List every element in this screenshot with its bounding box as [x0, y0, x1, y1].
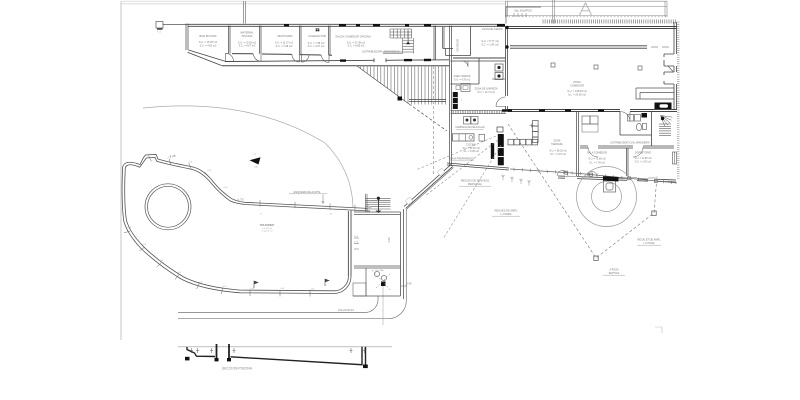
svg-text:RECIBIDOR: RECIBIDOR — [457, 38, 460, 52]
svg-text:P. 10: P. 10 — [157, 32, 161, 34]
svg-text:S.L. = 3.07 m2: S.L. = 3.07 m2 — [550, 153, 566, 156]
svg-text:S.C. = 1.93 m2: S.C. = 1.93 m2 — [481, 43, 499, 47]
svg-text:L.OTERA: L.OTERA — [500, 212, 511, 216]
svg-text:SECCION PISCINA: SECCION PISCINA — [222, 367, 253, 371]
svg-text:S.L. = 7.45 m2: S.L. = 7.45 m2 — [589, 162, 605, 165]
svg-text:S.C. = 2.07 m2: S.C. = 2.07 m2 — [308, 45, 325, 48]
svg-text:REGUES DE AMPL: REGUES DE AMPL — [495, 209, 518, 213]
svg-text:SEPTICA: SEPTICA — [609, 272, 620, 275]
svg-text:DISTRIBUIDOR CON JARDINERA: DISTRIBUIDOR CON JARDINERA — [610, 142, 649, 145]
svg-text:S.U. = 13.74 m2: S.U. = 13.74 m2 — [477, 91, 495, 94]
svg-text:VESTUARIO: VESTUARIO — [277, 34, 293, 38]
svg-text:2.90: 2.90 — [406, 282, 412, 286]
svg-text:S.C. = 4.07 m2: S.C. = 4.07 m2 — [239, 45, 256, 48]
svg-text:ZONA PREPARADOS: ZONA PREPARADOS — [449, 158, 474, 161]
svg-text:DORMITORIO: DORMITORIO — [635, 152, 651, 155]
svg-text:S.C. = 8.85 m2: S.C. = 8.85 m2 — [348, 44, 365, 47]
svg-text:S.U. = 4.75 m2: S.U. = 4.75 m2 — [454, 79, 471, 82]
svg-text:PISCINA: PISCINA — [242, 34, 253, 38]
svg-text:S.U. = 71.80 m2: S.U. = 71.80 m2 — [588, 158, 606, 161]
svg-text:ON: ON — [254, 167, 258, 169]
svg-text:ZONA: ZONA — [573, 80, 581, 84]
svg-text:SALVAVIDAS: SALVAVIDAS — [338, 308, 354, 312]
svg-text:st speed o st: st speed o st — [261, 229, 273, 232]
svg-text:COMEDOR: COMEDOR — [570, 84, 584, 88]
svg-text:ESQUEMA DE ACOTE: ESQUEMA DE ACOTE — [294, 190, 321, 194]
svg-text:S.U. = 5.77 m2: S.U. = 5.77 m2 — [481, 39, 499, 43]
svg-text:S.C. = 4.50 m2: S.C. = 4.50 m2 — [200, 44, 217, 47]
svg-text:SALON COMEDOR OFICINA: SALON COMEDOR OFICINA — [335, 34, 371, 38]
svg-text:L.OTILNA: L.OTILNA — [643, 242, 654, 245]
svg-text:TRA ASPIRAT: TRA ASPIRAT — [260, 224, 275, 227]
svg-text:1.60: 1.60 — [387, 237, 391, 243]
svg-text:TERRAZA: TERRAZA — [551, 143, 563, 146]
svg-text:CAMPANA DE PELICULAS: CAMPANA DE PELICULAS — [455, 126, 485, 129]
svg-text:S.C. = 1.87 m2: S.C. = 1.87 m2 — [635, 161, 652, 164]
svg-text:CALEFACTOR: CALEFACTOR — [308, 34, 326, 38]
svg-text:PISCINA: PISCINA — [375, 269, 384, 272]
svg-text:1 RAS DE ASEOS: 1 RAS DE ASEOS — [481, 27, 503, 31]
svg-text:S.L. = 5.05 m2: S.L. = 5.05 m2 — [463, 150, 479, 153]
svg-text:2da. EQUIPOS: 2da. EQUIPOS — [514, 9, 532, 13]
svg-text:S.C. = 3.48 m2: S.C. = 3.48 m2 — [276, 45, 293, 48]
svg-text:PERSONAL: PERSONAL — [468, 182, 483, 186]
svg-text:REGUES DE SERVICIO: REGUES DE SERVICIO — [461, 179, 489, 183]
svg-text:BAR PISCINA: BAR PISCINA — [199, 34, 216, 38]
svg-text:DISTRIBUIDORA JARDINERAS: DISTRIBUIDORA JARDINERAS — [362, 50, 400, 54]
svg-text:-1.70: -1.70 — [237, 198, 244, 202]
svg-text:SALA COMEDOR: SALA COMEDOR — [587, 152, 607, 155]
svg-text:S.L. = 20.05 m2: S.L. = 20.05 m2 — [568, 94, 586, 97]
